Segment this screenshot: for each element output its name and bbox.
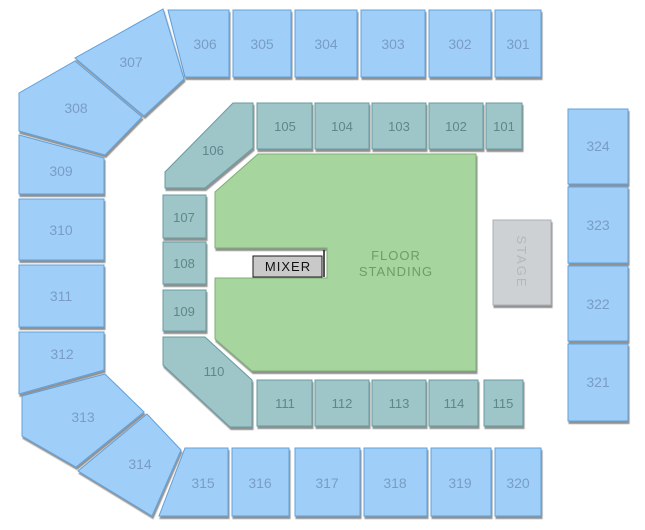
section-322[interactable]: 322 xyxy=(568,266,628,341)
section-324[interactable]: 324 xyxy=(568,109,628,184)
stage-area xyxy=(493,220,551,305)
section-321[interactable]: 321 xyxy=(568,344,628,421)
section-303[interactable]: 303 xyxy=(361,10,425,77)
mixer-box xyxy=(253,256,322,277)
section-318[interactable]: 318 xyxy=(364,448,427,516)
section-105[interactable]: 105 xyxy=(257,103,312,149)
section-107[interactable]: 107 xyxy=(163,195,206,238)
section-101[interactable]: 101 xyxy=(486,103,522,149)
section-113[interactable]: 113 xyxy=(372,380,426,426)
section-114[interactable]: 114 xyxy=(429,380,478,426)
section-319[interactable]: 319 xyxy=(431,448,491,516)
section-317[interactable]: 317 xyxy=(295,448,360,516)
section-108[interactable]: 108 xyxy=(163,242,206,284)
section-311[interactable]: 311 xyxy=(19,265,104,327)
stage: STAGE xyxy=(493,220,551,305)
section-103[interactable]: 103 xyxy=(372,103,426,149)
mixer: MIXER xyxy=(253,250,324,277)
section-310[interactable]: 310 xyxy=(19,199,104,260)
section-301[interactable]: 301 xyxy=(495,10,541,77)
section-115[interactable]: 115 xyxy=(484,380,523,426)
section-304[interactable]: 304 xyxy=(295,10,357,77)
section-302[interactable]: 302 xyxy=(429,10,491,77)
section-104[interactable]: 104 xyxy=(315,103,369,149)
section-112[interactable]: 112 xyxy=(315,380,369,426)
section-111[interactable]: 111 xyxy=(257,380,312,426)
seating-map-svg: FLOOR STANDING STAGE MIXER 306 305 304 3… xyxy=(0,0,645,530)
section-305[interactable]: 305 xyxy=(233,10,291,77)
section-323[interactable]: 323 xyxy=(568,187,628,263)
section-102[interactable]: 102 xyxy=(429,103,483,149)
section-316[interactable]: 316 xyxy=(232,448,289,516)
venue-seating-map: FLOOR STANDING STAGE MIXER 306 305 304 3… xyxy=(0,0,645,530)
section-109[interactable]: 109 xyxy=(163,290,206,331)
section-320[interactable]: 320 xyxy=(495,448,541,516)
